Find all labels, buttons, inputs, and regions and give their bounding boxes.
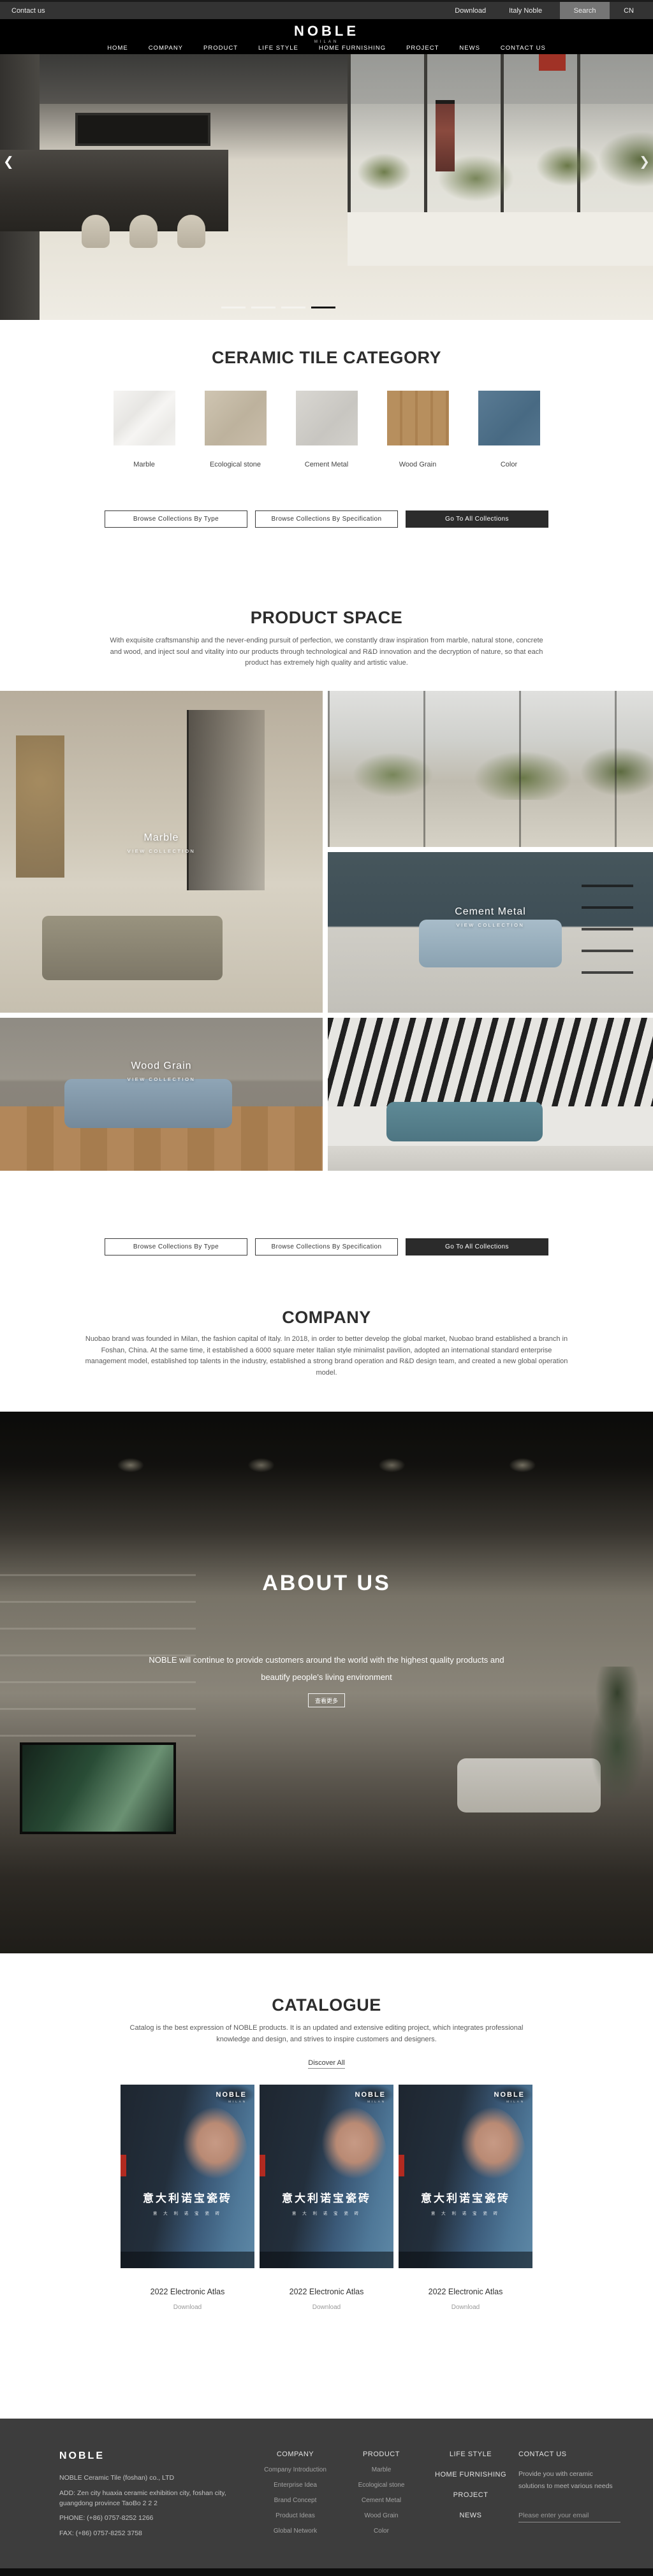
catalogue-item: NOBLE MILAN 意大利诺宝瓷砖 意 大 利 诺 宝 瓷 砖 2022 E… bbox=[260, 2085, 393, 2311]
atlas-title: 2022 Electronic Atlas bbox=[121, 2287, 254, 2296]
section-about-us: ABOUT US NOBLE will continue to provide … bbox=[0, 1412, 653, 1953]
carousel-indicator-4-active[interactable] bbox=[311, 307, 335, 309]
footer-link-life-style[interactable]: LIFE STYLE bbox=[423, 2450, 518, 2458]
footer-bottom-bar bbox=[0, 2568, 653, 2576]
space-card-name: Marble bbox=[0, 832, 323, 844]
footer-company-name: NOBLE Ceramic Tile (foshan) co., LTD bbox=[59, 2473, 251, 2484]
site-header: NOBLE MILAN HOME COMPANY PRODUCT LIFE ST… bbox=[0, 19, 653, 54]
cover-red-tab bbox=[399, 2155, 404, 2176]
section-ceramic-tile-category: CERAMIC TILE CATEGORY Marble Ecological … bbox=[0, 320, 653, 586]
section-company: COMPANY Nuobao brand was founded in Mila… bbox=[0, 1294, 653, 1412]
category-buttons: Browse Collections By Type Browse Collec… bbox=[0, 510, 653, 528]
go-to-all-collections-button[interactable]: Go To All Collections bbox=[406, 1238, 548, 1255]
download-link[interactable]: Download bbox=[443, 7, 497, 15]
tile-label: Wood Grain bbox=[387, 461, 449, 468]
catalogue-items: NOBLE MILAN 意大利诺宝瓷砖 意 大 利 诺 宝 瓷 砖 2022 E… bbox=[0, 2085, 653, 2311]
hero-carousel: ❮ ❯ bbox=[0, 54, 653, 320]
cement-metal-swatch bbox=[296, 391, 358, 445]
carousel-prev-icon[interactable]: ❮ bbox=[3, 154, 14, 169]
carousel-indicator-1[interactable] bbox=[221, 307, 246, 309]
product-space-buttons: Browse Collections By Type Browse Collec… bbox=[0, 1238, 653, 1255]
scene-glass-frames bbox=[328, 691, 653, 847]
space-card-wood-grain[interactable]: Wood Grain VIEW COLLECTION bbox=[0, 1018, 323, 1171]
footer-product-column: PRODUCT Marble Ecological stone Cement M… bbox=[340, 2450, 423, 2544]
atlas-cover[interactable]: NOBLE MILAN 意大利诺宝瓷砖 意 大 利 诺 宝 瓷 砖 bbox=[121, 2085, 254, 2268]
top-bar: Contact us Download Italy Noble Search C… bbox=[0, 0, 653, 19]
catalogue-item: NOBLE MILAN 意大利诺宝瓷砖 意 大 利 诺 宝 瓷 砖 2022 E… bbox=[399, 2085, 532, 2311]
tile-label: Marble bbox=[114, 461, 175, 468]
nav-item-company[interactable]: COMPANY bbox=[149, 45, 183, 52]
atlas-cover[interactable]: NOBLE MILAN 意大利诺宝瓷砖 意 大 利 诺 宝 瓷 砖 bbox=[399, 2085, 532, 2268]
atlas-title: 2022 Electronic Atlas bbox=[260, 2287, 393, 2296]
discover-all-link[interactable]: Discover All bbox=[308, 2059, 344, 2069]
contact-us-link[interactable]: Contact us bbox=[0, 7, 57, 15]
category-tiles: Marble Ecological stone Cement Metal Woo… bbox=[0, 391, 653, 468]
cover-cn-title: 意大利诺宝瓷砖 bbox=[260, 2189, 393, 2205]
nav-item-life-style[interactable]: LIFE STYLE bbox=[258, 45, 298, 52]
space-card-terrace[interactable] bbox=[328, 691, 653, 847]
wood-grain-swatch bbox=[387, 391, 449, 445]
footer-link-ecological-stone[interactable]: Ecological stone bbox=[340, 2482, 423, 2489]
tile-label: Color bbox=[478, 461, 540, 468]
footer-link-enterprise-idea[interactable]: Enterprise Idea bbox=[251, 2482, 340, 2489]
hero-scene-red-accent bbox=[539, 54, 566, 71]
scene-partition bbox=[187, 710, 264, 890]
nav-item-home-furnishing[interactable]: HOME FURNISHING bbox=[319, 45, 386, 52]
footer-link-brand-concept[interactable]: Brand Concept bbox=[251, 2497, 340, 2504]
footer-contact-heading[interactable]: CONTACT US bbox=[518, 2450, 620, 2458]
space-card-cement-metal[interactable]: Cement Metal VIEW COLLECTION bbox=[328, 852, 653, 1013]
carousel-indicator-2[interactable] bbox=[251, 307, 275, 309]
footer-link-cement-metal[interactable]: Cement Metal bbox=[340, 2497, 423, 2504]
cover-brand-subtitle: MILAN bbox=[367, 2100, 386, 2103]
category-title: CERAMIC TILE CATEGORY bbox=[0, 348, 653, 368]
hero-scene-greenery bbox=[348, 83, 653, 210]
cover-cn-title: 意大利诺宝瓷砖 bbox=[121, 2189, 254, 2205]
tile-ecological-stone[interactable]: Ecological stone bbox=[205, 391, 267, 468]
hero-scene-stool bbox=[82, 215, 110, 248]
marble-swatch bbox=[114, 391, 175, 445]
tile-label: Ecological stone bbox=[205, 461, 267, 468]
footer-contact-text: Provide you with ceramic solutions to me… bbox=[518, 2468, 614, 2493]
carousel-next-icon[interactable]: ❯ bbox=[639, 154, 650, 169]
ecological-stone-swatch bbox=[205, 391, 267, 445]
company-description: Nuobao brand was founded in Milan, the f… bbox=[84, 1334, 569, 1378]
scene-blue-sofa bbox=[64, 1079, 232, 1128]
brand-logo-subtitle: MILAN bbox=[0, 40, 653, 44]
footer-link-color[interactable]: Color bbox=[340, 2528, 423, 2535]
section-product-space: PRODUCT SPACE With exquisite craftsmansh… bbox=[0, 586, 653, 1294]
atlas-cover[interactable]: NOBLE MILAN 意大利诺宝瓷砖 意 大 利 诺 宝 瓷 砖 bbox=[260, 2085, 393, 2268]
scene-striped-art-wall bbox=[328, 1018, 653, 1106]
footer-company-column: COMPANY Company Introduction Enterprise … bbox=[251, 2450, 340, 2544]
brand-logo[interactable]: NOBLE bbox=[0, 23, 653, 40]
hero-scene-outdoor-ground bbox=[348, 212, 653, 266]
atlas-title: 2022 Electronic Atlas bbox=[399, 2287, 532, 2296]
scene-gold-panel bbox=[16, 735, 64, 877]
nav-item-product[interactable]: PRODUCT bbox=[203, 45, 238, 52]
carousel-pagination bbox=[221, 307, 335, 309]
product-space-title: PRODUCT SPACE bbox=[0, 608, 653, 628]
catalogue-item: NOBLE MILAN 意大利诺宝瓷砖 意 大 利 诺 宝 瓷 砖 2022 E… bbox=[121, 2085, 254, 2311]
scene-sofa bbox=[42, 916, 223, 980]
browse-by-specification-button[interactable]: Browse Collections By Specification bbox=[255, 510, 398, 528]
footer-product-heading[interactable]: PRODUCT bbox=[340, 2450, 423, 2458]
about-us-description: NOBLE will continue to provide customers… bbox=[135, 1652, 518, 1686]
hero-scene-stool bbox=[177, 215, 205, 248]
cover-cn-title: 意大利诺宝瓷砖 bbox=[399, 2189, 532, 2205]
cover-brand-subtitle: MILAN bbox=[228, 2100, 247, 2103]
space-card-name: Wood Grain bbox=[0, 1060, 323, 1072]
footer-link-marble[interactable]: Marble bbox=[340, 2466, 423, 2473]
catalogue-title: CATALOGUE bbox=[0, 1995, 653, 2015]
language-toggle[interactable]: CN bbox=[610, 7, 653, 15]
view-collection-link[interactable]: VIEW COLLECTION bbox=[0, 1076, 323, 1082]
footer-info-column: NOBLE NOBLE Ceramic Tile (foshan) co., L… bbox=[59, 2450, 251, 2544]
go-to-all-collections-button[interactable]: Go To All Collections bbox=[406, 510, 548, 528]
catalogue-description: Catalog is the best expression of NOBLE … bbox=[122, 2023, 531, 2045]
footer-company-heading[interactable]: COMPANY bbox=[251, 2450, 340, 2458]
about-us-title: ABOUT US bbox=[0, 1571, 653, 1596]
browse-by-type-button[interactable]: Browse Collections By Type bbox=[105, 510, 247, 528]
search-button[interactable]: Search bbox=[560, 2, 610, 19]
site-footer: NOBLE NOBLE Ceramic Tile (foshan) co., L… bbox=[0, 2419, 653, 2576]
footer-address: ADD: Zen city huaxia ceramic exhibition … bbox=[59, 2489, 251, 2509]
cover-bottom-strip bbox=[260, 2252, 393, 2268]
footer-link-global-network[interactable]: Global Network bbox=[251, 2528, 340, 2535]
nav-item-project[interactable]: PROJECT bbox=[406, 45, 439, 52]
browse-by-specification-button[interactable]: Browse Collections By Specification bbox=[255, 1238, 398, 1255]
cover-brand: NOBLE bbox=[494, 2091, 525, 2099]
view-collection-link[interactable]: VIEW COLLECTION bbox=[328, 922, 653, 928]
product-space-grid: Marble VIEW COLLECTION Cement Metal VIEW… bbox=[0, 691, 653, 1171]
footer-contact-column: CONTACT US Provide you with ceramic solu… bbox=[518, 2450, 620, 2544]
footer-link-news[interactable]: NEWS bbox=[423, 2512, 518, 2519]
hero-scene-garment-rack bbox=[436, 100, 455, 171]
browse-by-type-button[interactable]: Browse Collections By Type bbox=[105, 1238, 247, 1255]
footer-link-company-introduction[interactable]: Company Introduction bbox=[251, 2466, 340, 2473]
footer-fax: FAX: (+86) 0757-8252 3758 bbox=[59, 2529, 251, 2539]
view-more-button[interactable]: 查看更多 bbox=[308, 1693, 345, 1707]
footer-nav-column: LIFE STYLE HOME FURNISHING PROJECT NEWS bbox=[423, 2450, 518, 2544]
hero-scene-fireplace bbox=[75, 113, 210, 146]
newsletter-email-input[interactable] bbox=[518, 2509, 620, 2522]
hero-scene-stool bbox=[129, 215, 158, 248]
tile-marble[interactable]: Marble bbox=[114, 391, 175, 468]
footer-link-product-ideas[interactable]: Product Ideas bbox=[251, 2512, 340, 2519]
cover-red-tab bbox=[121, 2155, 126, 2176]
cover-brand: NOBLE bbox=[355, 2091, 386, 2099]
space-card-striped-wall[interactable] bbox=[328, 1018, 653, 1171]
tile-wood-grain[interactable]: Wood Grain bbox=[387, 391, 449, 468]
atlas-download-link[interactable]: Download bbox=[399, 2304, 532, 2311]
cover-cn-small: 意 大 利 诺 宝 瓷 砖 bbox=[399, 2210, 532, 2216]
nav-item-news[interactable]: NEWS bbox=[459, 45, 480, 52]
company-title: COMPANY bbox=[0, 1308, 653, 1328]
nav-item-home[interactable]: HOME bbox=[107, 45, 128, 52]
color-swatch bbox=[478, 391, 540, 445]
atlas-download-link[interactable]: Download bbox=[121, 2304, 254, 2311]
cover-bottom-strip bbox=[399, 2252, 532, 2268]
scene-floor bbox=[328, 1146, 653, 1170]
cover-bottom-strip bbox=[121, 2252, 254, 2268]
view-collection-link[interactable]: VIEW COLLECTION bbox=[0, 848, 323, 854]
space-card-name: Cement Metal bbox=[328, 906, 653, 918]
section-catalogue: CATALOGUE Catalog is the best expression… bbox=[0, 1953, 653, 2419]
nav-item-contact-us[interactable]: CONTACT US bbox=[501, 45, 546, 52]
footer-phone: PHONE: (+86) 0757-8252 1266 bbox=[59, 2514, 251, 2524]
tile-cement-metal[interactable]: Cement Metal bbox=[296, 391, 358, 468]
cover-cn-small: 意 大 利 诺 宝 瓷 砖 bbox=[121, 2210, 254, 2216]
italy-noble-link[interactable]: Italy Noble bbox=[497, 7, 554, 15]
footer-logo: NOBLE bbox=[59, 2450, 251, 2462]
cover-brand-subtitle: MILAN bbox=[506, 2100, 525, 2103]
carousel-indicator-3[interactable] bbox=[281, 307, 305, 309]
footer-link-project[interactable]: PROJECT bbox=[423, 2491, 518, 2499]
product-space-description: With exquisite craftsmanship and the nev… bbox=[103, 635, 550, 669]
cover-cn-small: 意 大 利 诺 宝 瓷 砖 bbox=[260, 2210, 393, 2216]
footer-link-wood-grain[interactable]: Wood Grain bbox=[340, 2512, 423, 2519]
tile-color[interactable]: Color bbox=[478, 391, 540, 468]
cover-brand: NOBLE bbox=[216, 2091, 247, 2099]
cover-red-tab bbox=[260, 2155, 265, 2176]
scene-teal-sofa bbox=[386, 1102, 543, 1141]
tile-label: Cement Metal bbox=[296, 461, 358, 468]
atlas-download-link[interactable]: Download bbox=[260, 2304, 393, 2311]
main-nav: HOME COMPANY PRODUCT LIFE STYLE HOME FUR… bbox=[0, 45, 653, 52]
space-card-marble[interactable]: Marble VIEW COLLECTION bbox=[0, 691, 323, 1013]
footer-link-home-furnishing[interactable]: HOME FURNISHING bbox=[423, 2471, 518, 2478]
